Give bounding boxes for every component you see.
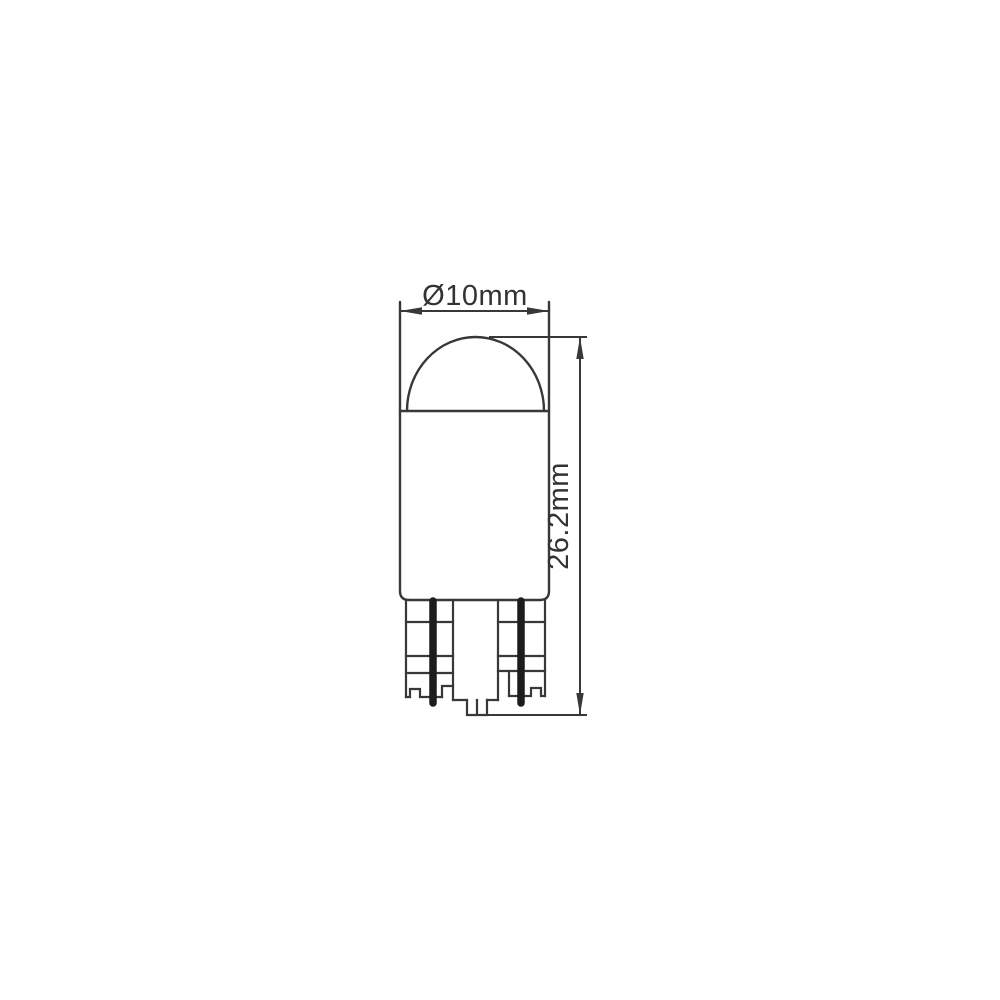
bulb-dome (407, 337, 544, 411)
bulb-dimension-drawing: Ø10mm 26.2mm (0, 0, 1000, 1000)
bulb-body-left-side (400, 302, 409, 600)
bulb-outline (400, 302, 549, 600)
diameter-dimension: Ø10mm (400, 280, 549, 315)
height-dimension: 26.2mm (487, 337, 587, 715)
base-right-bottom-notch (509, 688, 545, 696)
height-label: 26.2mm (543, 462, 575, 570)
height-arrow-up (576, 337, 583, 359)
base-left-step (442, 686, 453, 697)
base-bottom-tab (467, 700, 487, 715)
drawing-canvas: Ø10mm 26.2mm (0, 0, 1000, 1000)
diameter-label: Ø10mm (422, 280, 528, 312)
diameter-arrow-right (527, 307, 549, 315)
contact-wires (433, 601, 521, 703)
diameter-arrow-left (400, 307, 422, 315)
height-arrow-down (576, 693, 583, 715)
